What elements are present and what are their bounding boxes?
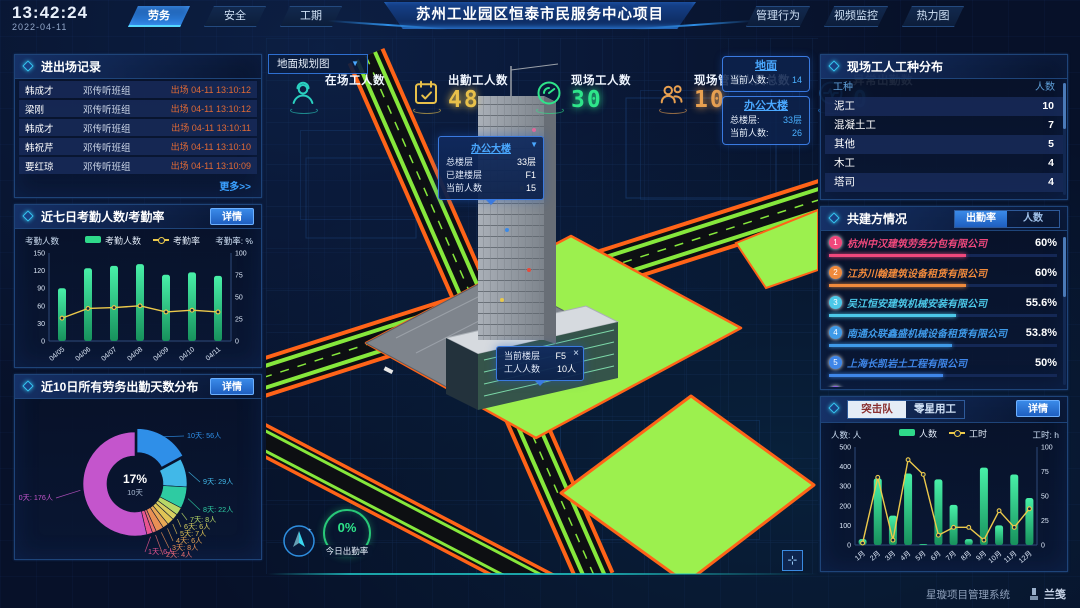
- building-tooltip: 办公大楼 ▼ 总楼层33层 已建楼层F1 当前人数15: [438, 136, 544, 200]
- exit-event: 出场 04-11 13:10:09: [171, 159, 251, 172]
- svg-text:7月: 7月: [944, 549, 957, 562]
- progress-fill: [829, 284, 966, 288]
- svg-text:04/09: 04/09: [152, 346, 170, 363]
- svg-text:500: 500: [839, 445, 851, 452]
- type-name: 其他: [834, 135, 855, 154]
- floor-tooltip: × 当前楼层F5 工人人数10人: [496, 346, 584, 381]
- partner-row[interactable]: 6江苏法诺建筑安装工程有限公司35.4%: [829, 383, 1057, 387]
- stat-label: 现场工人数: [571, 72, 631, 88]
- progress-fill: [829, 254, 966, 258]
- entry-row[interactable]: 韩成才邓传听班组出场 04-11 13:10:11: [19, 119, 257, 136]
- crew-name: 邓传听班组: [83, 121, 171, 135]
- svg-text:04/10: 04/10: [178, 346, 196, 363]
- tab-squad[interactable]: 突击队: [848, 401, 906, 418]
- scrollbar[interactable]: [1063, 83, 1066, 195]
- rank-badge: 1: [829, 236, 842, 249]
- progress-track: [829, 284, 1057, 288]
- svg-text:04/05: 04/05: [48, 346, 66, 363]
- fullscreen-icon[interactable]: ⊹: [782, 550, 803, 571]
- attendance-days-title: 近10日所有劳务出勤天数分布: [41, 380, 198, 394]
- more-link[interactable]: 更多>>: [219, 178, 251, 193]
- svg-text:120: 120: [33, 268, 45, 275]
- logo-icon: [1028, 587, 1040, 601]
- table-row[interactable]: 其他5: [825, 135, 1063, 154]
- partners-title: 共建方情况: [847, 212, 907, 226]
- svg-text:12月: 12月: [1017, 549, 1033, 565]
- rank-badge: 5: [829, 356, 842, 369]
- platform-edge: [268, 573, 818, 575]
- exit-event: 出场 04-11 13:10:11: [171, 121, 251, 134]
- worker-icon: [288, 78, 318, 108]
- stat-value: 30: [571, 88, 631, 112]
- partner-row[interactable]: 3吴江恒安建筑机械安装有限公司55.6%: [829, 293, 1057, 323]
- partner-line: 1杭州中汉建筑劳务分包有限公司60%: [829, 233, 1057, 252]
- panel-diamond-icon: [828, 60, 839, 71]
- svg-text:+: +: [308, 528, 312, 534]
- table-row[interactable]: 塔司4: [825, 173, 1063, 192]
- tab-headcount[interactable]: 人数: [1007, 211, 1059, 227]
- svg-text:17%: 17%: [123, 472, 147, 486]
- rank-badge: 4: [829, 326, 842, 339]
- line-swatch: [153, 239, 169, 241]
- svg-text:2月: 2月: [869, 549, 882, 562]
- worker-name: 韩祝芹: [25, 140, 83, 154]
- crew-name: 邓传听班组: [83, 83, 171, 97]
- exit-event: 出场 04-11 13:10:12: [171, 83, 251, 96]
- detail-button[interactable]: 详情: [210, 378, 254, 395]
- y-right-label: 工时: h: [1033, 429, 1059, 441]
- stat-text: 出勤工人数48: [448, 72, 508, 112]
- worker-name: 要红琼: [25, 159, 83, 173]
- donut-slice-10天[interactable]: [137, 429, 183, 468]
- tab-劳务[interactable]: 劳务: [128, 6, 190, 27]
- partner-name: 上海长凯岩土工程有限公司: [847, 355, 1030, 370]
- stat-text: 现场工人数30: [571, 72, 631, 112]
- exit-event: 出场 04-11 13:10:10: [171, 140, 251, 153]
- table-row[interactable]: 泥工10: [825, 97, 1063, 116]
- partner-line: 2江苏川翰建筑设备租赁有限公司60%: [829, 263, 1057, 282]
- worker-types-panel: 现场工人工种分布 工种 人数 泥工10混凝土工7其他5木工4塔司4: [820, 54, 1068, 200]
- map-view-dropdown[interactable]: 地面规划图 ▼: [268, 54, 368, 74]
- crew-name: 邓传听班组: [83, 140, 171, 154]
- y-left-label: 考勤人数: [25, 235, 59, 247]
- stat-calendar-check: 出勤工人数48: [411, 72, 508, 112]
- worker-name: 韩成才: [25, 83, 83, 97]
- type-count: 10: [1042, 97, 1054, 116]
- dashboard: 13:42:24 2022-04-11 劳务安全工期 苏州工业园区恒泰市民服务中…: [0, 0, 1080, 608]
- rank-badge: 3: [829, 296, 842, 309]
- entry-row[interactable]: 梁刚邓传听班组出场 04-11 13:10:12: [19, 100, 257, 117]
- entry-row[interactable]: 韩祝芹邓传听班组出场 04-11 13:10:10: [19, 138, 257, 155]
- partner-value: 53.8%: [1026, 327, 1057, 339]
- svg-text:8月: 8月: [960, 549, 973, 562]
- type-name: 泥工: [834, 97, 855, 116]
- ground-info-card[interactable]: 地面 当前人数:14: [722, 56, 810, 92]
- svg-text:25: 25: [235, 317, 243, 324]
- footer: 星璇项目管理系统 兰笺: [926, 586, 1066, 602]
- panel-diamond-icon: [22, 380, 33, 391]
- rank-badge: 6: [829, 386, 842, 387]
- partner-name: 江苏法诺建筑安装工程有限公司: [847, 385, 1021, 387]
- svg-text:100: 100: [1041, 445, 1053, 452]
- scrollbar[interactable]: [1063, 237, 1066, 385]
- people-icon: [657, 78, 687, 108]
- exit-event: 出场 04-11 13:10:12: [171, 102, 251, 115]
- partner-line: 5上海长凯岩土工程有限公司50%: [829, 353, 1057, 372]
- type-name: 混凝土工: [834, 116, 876, 135]
- col-type: 工种: [833, 79, 853, 97]
- stat-label: 在场工人数: [325, 72, 385, 88]
- partner-row[interactable]: 1杭州中汉建筑劳务分包有限公司60%: [829, 233, 1057, 263]
- close-icon[interactable]: ×: [573, 348, 579, 359]
- svg-text:10月: 10月: [987, 549, 1003, 565]
- entry-exit-panel: 进出场记录 韩成才邓传听班组出场 04-11 13:10:12梁刚邓传听班组出场…: [14, 54, 262, 198]
- y-right-label: 考勤率: %: [215, 235, 253, 247]
- svg-text:11月: 11月: [1002, 549, 1018, 564]
- svg-text:25: 25: [1041, 518, 1049, 525]
- partner-row[interactable]: 2江苏川翰建筑设备租赁有限公司60%: [829, 263, 1057, 293]
- tab-视频监控[interactable]: 视频监控: [824, 6, 888, 27]
- svg-text:10天: 56人: 10天: 56人: [187, 431, 221, 440]
- partner-line: 4南通众联鑫盛机械设备租赁有限公司53.8%: [829, 323, 1057, 342]
- squad-tab-group: 突击队 零星用工: [847, 400, 965, 419]
- svg-text:10天: 10天: [127, 488, 143, 497]
- worker-types-title: 现场工人工种分布: [847, 60, 943, 74]
- partner-name: 杭州中汉建筑劳务分包有限公司: [847, 235, 1030, 250]
- detail-button[interactable]: 详情: [1016, 400, 1060, 417]
- svg-text:6月: 6月: [929, 549, 942, 562]
- svg-text:400: 400: [839, 464, 851, 471]
- line-swatch: [949, 432, 965, 434]
- svg-text:50: 50: [1041, 494, 1049, 501]
- svg-text:75: 75: [235, 273, 243, 280]
- building-tooltip-title[interactable]: 办公大楼: [446, 140, 536, 155]
- tab-工期[interactable]: 工期: [280, 6, 342, 27]
- progress-track: [829, 374, 1057, 378]
- partner-name: 江苏川翰建筑设备租赁有限公司: [847, 265, 1030, 280]
- entry-row[interactable]: 要红琼邓传听班组出场 04-11 13:10:09: [19, 157, 257, 174]
- partner-line: 6江苏法诺建筑安装工程有限公司35.4%: [829, 383, 1057, 387]
- attendance-legend: 考勤人数 考勤率: [85, 234, 200, 247]
- svg-text:04/07: 04/07: [100, 346, 118, 363]
- entry-exit-title: 进出场记录: [41, 60, 101, 74]
- svg-text:1天: 6人: 1天: 6人: [148, 547, 174, 556]
- svg-text:100: 100: [839, 523, 851, 530]
- attendance-days-donut: 10天: 56人9天: 29人8天: 22人7天: 8人6天: 6人5天: 7人…: [19, 402, 259, 560]
- partner-value: 60%: [1035, 237, 1057, 249]
- svg-text:100: 100: [235, 251, 247, 258]
- time: 13:42:24: [12, 4, 88, 23]
- svg-text:4月: 4月: [899, 549, 912, 562]
- progress-track: [829, 254, 1057, 258]
- y-left-label: 人数: 人: [831, 429, 861, 441]
- attendance-chart: 0306090120150025507510004/0504/0604/0704…: [19, 247, 259, 365]
- worker-name: 韩成才: [25, 121, 83, 135]
- detail-button[interactable]: 详情: [210, 208, 254, 225]
- svg-text:9天: 29人: 9天: 29人: [203, 477, 233, 486]
- partners-list: 1杭州中汉建筑劳务分包有限公司60%2江苏川翰建筑设备租赁有限公司60%3吴江恒…: [821, 233, 1067, 387]
- chevron-down-icon: ▼: [351, 55, 359, 73]
- partner-name: 南通众联鑫盛机械设备租赁有限公司: [847, 325, 1021, 340]
- svg-text:1月: 1月: [853, 549, 866, 562]
- svg-text:3月: 3月: [884, 549, 897, 562]
- svg-text:0: 0: [847, 543, 851, 550]
- partner-row[interactable]: 4南通众联鑫盛机械设备租赁有限公司53.8%: [829, 323, 1057, 353]
- panel-diamond-icon: [828, 402, 839, 413]
- table-row[interactable]: 混凝土工7: [825, 116, 1063, 135]
- clock: 13:42:24 2022-04-11: [12, 4, 88, 33]
- entry-exit-list: 韩成才邓传听班组出场 04-11 13:10:12梁刚邓传听班组出场 04-11…: [15, 81, 261, 174]
- bar-swatch: [899, 429, 915, 436]
- svg-text:30: 30: [37, 321, 45, 328]
- tab-管理行为[interactable]: 管理行为: [746, 6, 810, 27]
- tab-热力图[interactable]: 热力图: [902, 6, 964, 27]
- panel-diamond-icon: [828, 212, 839, 223]
- partner-line: 3吴江恒安建筑机械安装有限公司55.6%: [829, 293, 1057, 312]
- svg-text:9月: 9月: [975, 549, 988, 562]
- svg-text:90: 90: [37, 286, 45, 293]
- chevron-down-icon[interactable]: ▼: [530, 140, 538, 149]
- squad-legend: 人数 工时: [899, 427, 987, 440]
- attendance-days-panel: 近10日所有劳务出勤天数分布 详情 10天: 56人9天: 29人8天: 22人…: [14, 374, 262, 560]
- partners-panel: 共建方情况 出勤率 人数 1杭州中汉建筑劳务分包有限公司60%2江苏川翰建筑设备…: [820, 206, 1068, 390]
- progress-fill: [829, 344, 952, 348]
- right-tab-group: 管理行为视频监控热力图: [746, 6, 964, 27]
- partner-value: 55.6%: [1026, 297, 1057, 309]
- panel-diamond-icon: [22, 210, 33, 221]
- partner-value: 35.4%: [1026, 387, 1057, 388]
- partner-value: 50%: [1035, 357, 1057, 369]
- office-building-info-card[interactable]: 办公大楼 总楼层:33层 当前人数:26: [722, 96, 810, 145]
- svg-text:04/08: 04/08: [126, 346, 144, 363]
- svg-text:5月: 5月: [914, 549, 927, 562]
- gauge-icon: [534, 78, 564, 108]
- partner-value: 60%: [1035, 267, 1057, 279]
- crew-name: 邓传听班组: [83, 102, 171, 116]
- date: 2022-04-11: [12, 23, 88, 33]
- svg-text:8天: 22人: 8天: 22人: [203, 505, 233, 514]
- worker-types-table: 泥工10混凝土工7其他5木工4塔司4: [821, 97, 1067, 192]
- stat-gauge: 现场工人数30: [534, 72, 631, 112]
- type-count: 5: [1048, 135, 1054, 154]
- col-count: 人数: [1035, 79, 1055, 97]
- squad-chart: 010020030040050002550751001月2月3月4月5月6月7月…: [825, 441, 1065, 569]
- system-name: 星璇项目管理系统: [926, 587, 1010, 602]
- type-name: 塔司: [834, 173, 855, 192]
- svg-text:04/06: 04/06: [74, 346, 92, 363]
- type-count: 4: [1048, 154, 1054, 173]
- partner-name: 吴江恒安建筑机械安装有限公司: [847, 295, 1021, 310]
- progress-track: [829, 314, 1057, 318]
- svg-text:300: 300: [839, 484, 851, 491]
- bar-swatch: [85, 236, 101, 243]
- stat-worker: 在场工人数: [288, 72, 385, 108]
- attendance-chart-panel: 近七日考勤人数/考勤率 详情 考勤人数 考勤率: % 考勤人数 考勤率 0306…: [14, 204, 262, 368]
- svg-text:75: 75: [1041, 469, 1049, 476]
- progress-fill: [829, 314, 956, 318]
- today-attendance-gauge: 0% 今日出勤率: [323, 509, 371, 557]
- svg-text:50: 50: [235, 295, 243, 302]
- gauge-value: 0%: [325, 520, 369, 535]
- attendance-title: 近七日考勤人数/考勤率: [41, 210, 164, 224]
- partner-row[interactable]: 5上海长凯岩土工程有限公司50%: [829, 353, 1057, 383]
- svg-text:60: 60: [37, 303, 45, 310]
- stat-text: 在场工人数: [325, 72, 385, 88]
- tab-attendance-rate[interactable]: 出勤率: [955, 211, 1007, 227]
- worker-name: 梁刚: [25, 102, 83, 116]
- squad-chart-panel: 突击队 零星用工 详情 人数: 人 工时: h 人数 工时 0100200300…: [820, 396, 1068, 572]
- tab-安全[interactable]: 安全: [204, 6, 266, 27]
- svg-text:0天: 176人: 0天: 176人: [19, 493, 53, 502]
- svg-text:0: 0: [41, 339, 45, 346]
- type-name: 木工: [834, 154, 855, 173]
- stat-value: 48: [448, 88, 508, 112]
- type-count: 4: [1048, 173, 1054, 192]
- table-row[interactable]: 木工4: [825, 154, 1063, 173]
- svg-text:04/11: 04/11: [205, 346, 223, 362]
- compass-icon[interactable]: +: [281, 523, 317, 559]
- calendar-check-icon: [411, 78, 441, 108]
- crew-name: 邓传听班组: [83, 159, 171, 173]
- type-count: 7: [1048, 116, 1054, 135]
- brand-logo: 兰笺: [1028, 586, 1066, 602]
- map-view-label: 地面规划图: [277, 58, 330, 70]
- svg-text:200: 200: [839, 503, 851, 510]
- progress-fill: [829, 374, 943, 378]
- svg-text:0: 0: [1041, 543, 1045, 550]
- page-title: 苏州工业园区恒泰市民服务中心项目: [384, 2, 696, 29]
- stat-label: 出勤工人数: [448, 72, 508, 88]
- progress-track: [829, 344, 1057, 348]
- svg-text:150: 150: [33, 251, 45, 258]
- svg-text:0: 0: [235, 339, 239, 346]
- left-tab-group: 劳务安全工期: [128, 6, 342, 27]
- entry-row[interactable]: 韩成才邓传听班组出场 04-11 13:10:12: [19, 81, 257, 98]
- tab-casual-labor[interactable]: 零星用工: [906, 401, 964, 418]
- panel-diamond-icon: [22, 60, 33, 71]
- partners-tab-group: 出勤率 人数: [954, 210, 1060, 228]
- rank-badge: 2: [829, 266, 842, 279]
- gauge-label: 今日出勤率: [322, 545, 373, 557]
